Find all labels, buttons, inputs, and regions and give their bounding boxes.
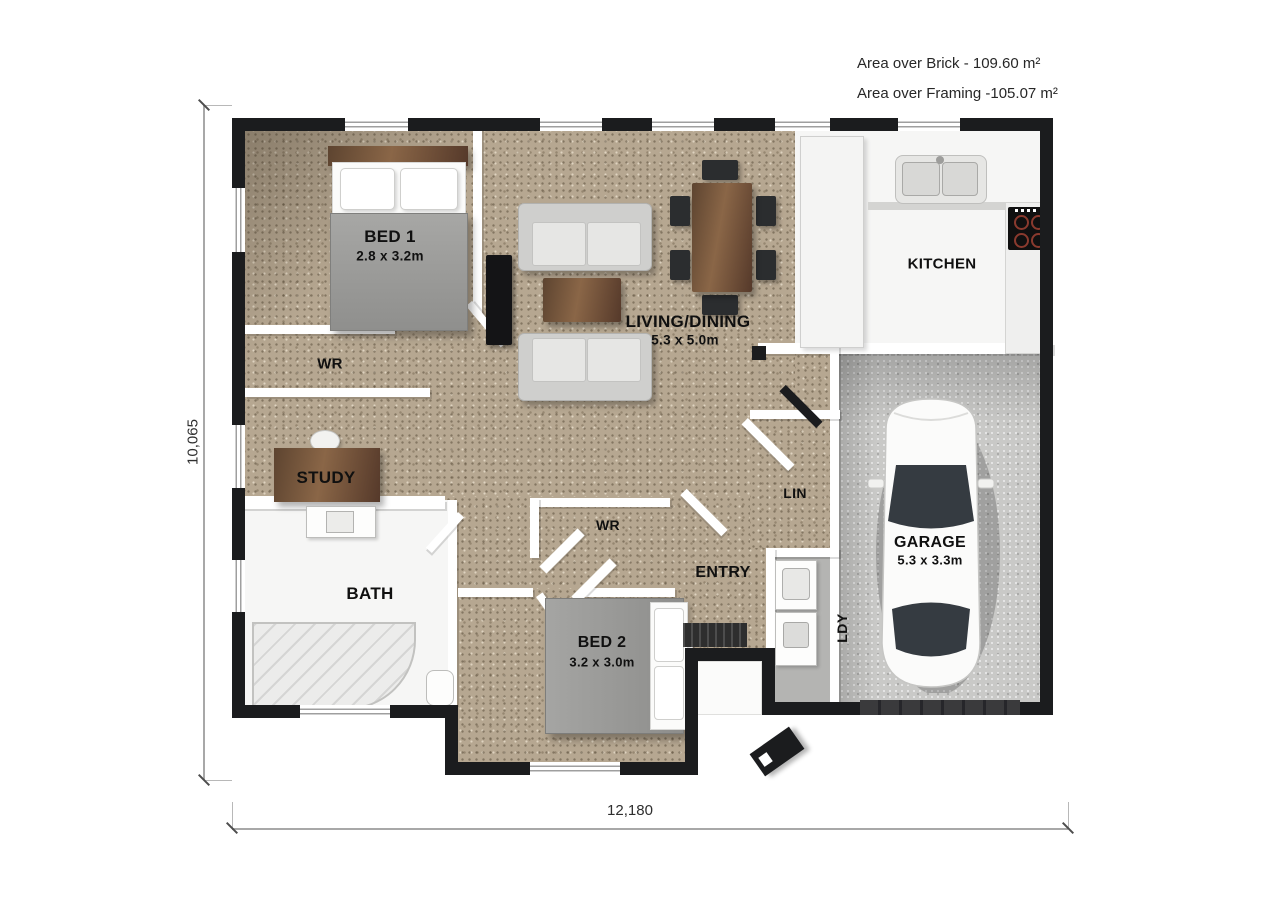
floor-plan: BED 1 2.8 x 3.2m WR STUDY BATH LIVING/DI… xyxy=(230,110,1062,782)
coffee-table xyxy=(543,278,621,322)
bed2-label: BED 2 xyxy=(578,634,627,652)
overall-width-dimension: 12,180 xyxy=(607,802,653,819)
bed1-right-wall xyxy=(473,125,482,315)
dining-chair xyxy=(756,196,776,226)
wr2-left-wall xyxy=(530,498,539,558)
window xyxy=(540,118,602,131)
sofa-bottom-cushion-2 xyxy=(587,338,641,382)
laundry-tub-basin xyxy=(782,568,810,600)
lin-label: LIN xyxy=(783,485,806,501)
cooktop-burner xyxy=(1014,215,1029,230)
tv-panel xyxy=(486,255,512,345)
area-over-brick-note: Area over Brick - 109.60 m² xyxy=(857,55,1040,72)
dimension-extension-bottom xyxy=(204,780,232,781)
dining-chair xyxy=(670,196,690,226)
wr2-label: WR xyxy=(596,517,620,533)
sofa-top-cushion-1 xyxy=(532,222,586,266)
car-mirror-left xyxy=(868,479,884,488)
wr1-bottom-wall xyxy=(245,388,430,397)
wr2-top-wall xyxy=(530,498,670,507)
garage-door xyxy=(860,700,1020,715)
sink-faucet xyxy=(936,156,944,164)
window xyxy=(898,118,960,131)
garage-label: GARAGE xyxy=(894,534,966,552)
exterior-wall-right xyxy=(1040,118,1053,715)
car-windshield xyxy=(888,465,974,529)
entry-porch-slab xyxy=(688,661,762,715)
front-door-mat xyxy=(683,623,747,647)
study-label: STUDY xyxy=(296,468,355,488)
bed2-pillow-top xyxy=(654,608,684,662)
ldy-label: LDY xyxy=(834,613,850,643)
sofa-bottom-cushion-1 xyxy=(532,338,586,382)
sofa-top-cushion-2 xyxy=(587,222,641,266)
entry-label: ENTRY xyxy=(695,564,750,582)
letterbox-slot xyxy=(758,752,773,767)
dining-chair xyxy=(670,250,690,280)
garage-size-label: 5.3 x 3.3m xyxy=(897,553,962,568)
toilet xyxy=(426,670,454,706)
ldy-top-wall xyxy=(766,548,839,557)
overall-height-dimension: 10,065 xyxy=(185,419,202,465)
garage-wall-post xyxy=(752,346,766,360)
window xyxy=(232,188,245,252)
dimension-line-horizontal xyxy=(232,828,1068,830)
living-dining-size-label: 5.3 x 5.0m xyxy=(651,333,719,348)
window xyxy=(232,425,245,488)
ldy-left-wall xyxy=(766,548,775,648)
car-mirror-right xyxy=(978,479,994,488)
bed1-label: BED 1 xyxy=(364,227,416,247)
window xyxy=(300,705,390,718)
kitchen-peninsula-counter xyxy=(800,136,864,348)
letterbox xyxy=(750,727,805,777)
car-rear-window xyxy=(892,603,970,657)
cooktop-burner xyxy=(1014,233,1029,248)
wr1-label: WR xyxy=(317,356,343,373)
bed1-pillow-right xyxy=(400,168,458,210)
dimension-extension-top xyxy=(204,105,232,106)
bed2-top-wall-left xyxy=(458,588,533,597)
dimension-line-vertical xyxy=(203,105,205,780)
dimension-extension-right xyxy=(1068,802,1069,828)
window xyxy=(775,118,830,131)
cooktop-controls xyxy=(1015,209,1039,212)
bed2-size-label: 3.2 x 3.0m xyxy=(569,655,634,670)
bed2-top-wall-right xyxy=(585,588,675,597)
area-over-framing-note: Area over Framing -105.07 m² xyxy=(857,85,1058,102)
dining-chair xyxy=(702,160,738,180)
kitchen-label: KITCHEN xyxy=(908,256,977,273)
garage-left-wall xyxy=(830,343,839,702)
bed1-pillow-left xyxy=(340,168,395,210)
living-dining-label: LIVING/DINING xyxy=(626,312,751,332)
dining-table xyxy=(692,183,752,292)
bed2-pillow-bottom xyxy=(654,666,684,720)
lin-carpet-floor xyxy=(750,410,830,548)
dimension-extension-left xyxy=(232,802,233,828)
sink-basin-right xyxy=(942,162,978,196)
sink-basin-left xyxy=(902,162,940,196)
lin-top-wall xyxy=(750,410,840,419)
window xyxy=(232,560,245,612)
floor-plan-sheet: Area over Brick - 109.60 m² Area over Fr… xyxy=(0,0,1280,905)
exterior-wall-ldy-left xyxy=(762,648,775,710)
window xyxy=(345,118,408,131)
window xyxy=(652,118,714,131)
vanity-basin xyxy=(326,511,354,533)
window xyxy=(530,762,620,775)
bed1-size-label: 2.8 x 3.2m xyxy=(356,249,424,264)
washing-machine-door xyxy=(783,622,809,648)
exterior-wall-bed2-right xyxy=(685,648,698,775)
dining-chair xyxy=(756,250,776,280)
bath-label: BATH xyxy=(346,584,393,604)
